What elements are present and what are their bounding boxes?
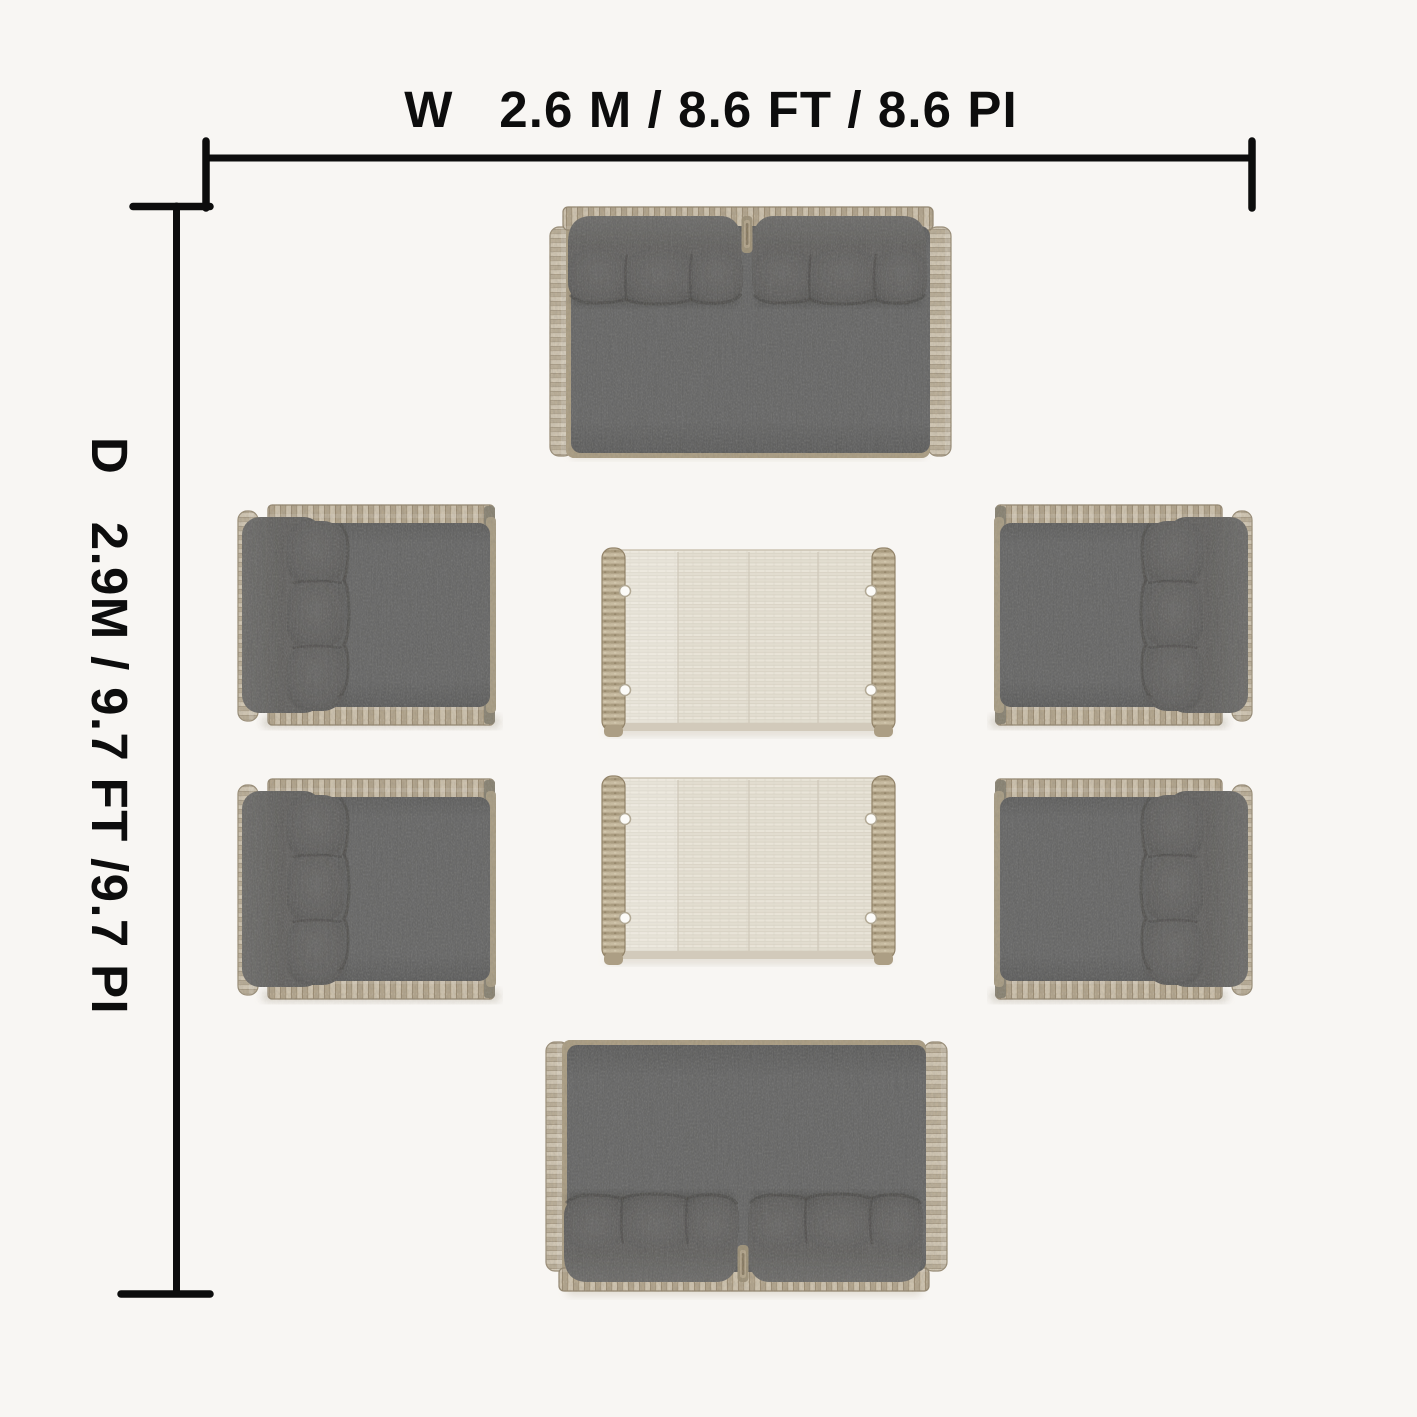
svg-text:W 2.6 M / 8.6 FT / 8.6 PI: W 2.6 M / 8.6 FT / 8.6 PI xyxy=(404,81,1018,138)
svg-text:D 2.9M / 9.7 FT /9.7 PI: D 2.9M / 9.7 FT /9.7 PI xyxy=(81,437,138,1015)
